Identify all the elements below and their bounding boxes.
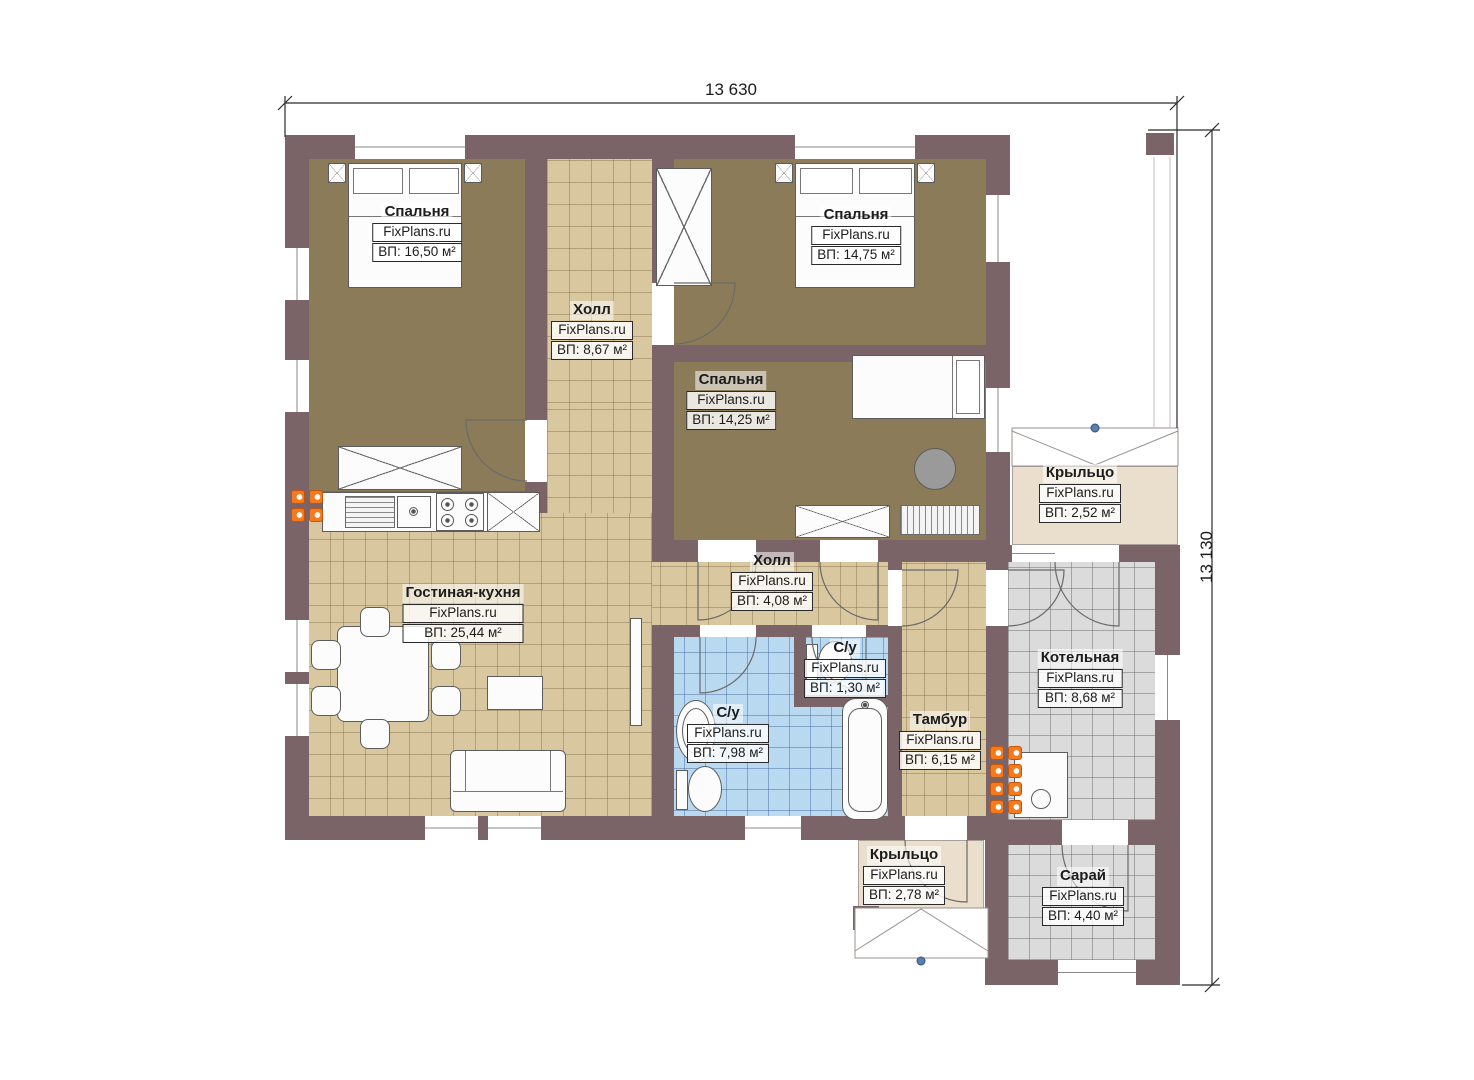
room-area: ВП: 6,15 м² [899,751,981,770]
brand-watermark: FixPlans.ru [811,226,901,245]
toilet [676,764,724,816]
door-opening [1055,545,1119,562]
room-name: Крыльцо [867,846,941,865]
radiator [291,490,323,522]
window [285,620,309,672]
room-name: Гостиная-кухня [403,584,524,603]
room-area: ВП: 4,08 м² [731,592,813,611]
window [745,816,801,840]
chair [431,640,461,670]
door-opening [820,540,878,562]
room-area: ВП: 14,75 м² [811,246,901,265]
coffee-table [487,676,543,710]
chair [311,686,341,716]
door-opening [525,420,547,482]
room-area: ВП: 8,67 м² [551,341,633,360]
room-name: Холл [750,552,794,571]
heater-appliance [900,505,980,535]
brand-watermark: FixPlans.ru [899,731,981,750]
dimension-top-label: 13 630 [631,80,831,100]
marker-dot [1091,424,1099,432]
floor-tambour [902,562,986,816]
window [986,388,1010,452]
brand-watermark: FixPlans.ru [372,223,462,242]
dimension-right-label: 13 130 [1197,502,1217,612]
window [1012,545,1058,562]
marker-dot [917,957,925,965]
nightstand [464,163,482,183]
chair [360,607,390,637]
room-label-shed: Сарай FixPlans.ru ВП: 4,40 м² [1042,866,1124,926]
room-label-bedroom-2: Спальня FixPlans.ru ВП: 14,75 м² [811,205,901,265]
wardrobe [795,505,890,538]
room-area: ВП: 4,40 м² [1042,907,1124,926]
room-label-boiler-room: Котельная FixPlans.ru ВП: 8,68 м² [1038,648,1123,708]
boiler [1014,752,1068,818]
room-area: ВП: 16,50 м² [372,243,462,262]
window [355,135,465,159]
floor-plan-canvas: 13 630 13 130 Спальня FixPlans.ru ВП: 16… [0,0,1474,1080]
brand-watermark: FixPlans.ru [1038,669,1123,688]
brand-watermark: FixPlans.ru [1039,484,1121,503]
porch-top-roof [1012,428,1178,466]
chimney-block [1146,133,1174,155]
door-opening [1062,820,1128,845]
radiator [990,746,1022,814]
brand-watermark: FixPlans.ru [686,391,776,410]
room-name: Сарай [1057,867,1109,886]
window [285,360,309,412]
window [488,816,541,840]
brand-watermark: FixPlans.ru [551,321,633,340]
wardrobe [656,168,712,286]
chair [431,686,461,716]
room-name: С/у [713,704,742,723]
brand-watermark: FixPlans.ru [403,604,524,623]
door-opening [986,570,1008,626]
room-area: ВП: 25,44 м² [403,624,524,643]
room-area: ВП: 1,30 м² [804,679,886,698]
window [795,135,915,159]
room-label-porch-bottom: Крыльцо FixPlans.ru ВП: 2,78 м² [863,845,945,905]
pot [914,448,956,490]
nightstand [775,163,793,183]
wardrobe [338,446,462,490]
room-area: ВП: 14,25 м² [686,411,776,430]
room-label-wc-small: С/у FixPlans.ru ВП: 1,30 м² [804,638,886,698]
kitchen-sink-drainer [345,496,395,528]
brand-watermark: FixPlans.ru [804,659,886,678]
tv-cabinet [630,618,642,726]
room-label-wc-big: С/у FixPlans.ru ВП: 7,98 м² [687,703,769,763]
bathtub [842,698,888,820]
brand-watermark: FixPlans.ru [863,866,945,885]
nightstand [917,163,935,183]
room-area: ВП: 2,78 м² [863,886,945,905]
brand-watermark: FixPlans.ru [1042,887,1124,906]
porch-pillar [853,906,879,930]
floor-passage [652,562,674,625]
room-label-porch-top: Крыльцо FixPlans.ru ВП: 2,52 м² [1039,463,1121,523]
nightstand [328,163,346,183]
room-label-hall-1: Холл FixPlans.ru ВП: 8,67 м² [551,300,633,360]
chair [360,719,390,749]
room-label-hall-2: Холл FixPlans.ru ВП: 4,08 м² [731,551,813,611]
room-name: Спальня [821,206,892,225]
window [1058,960,1136,985]
door-opening [812,625,866,637]
chair [311,640,341,670]
room-area: ВП: 8,68 м² [1038,689,1123,708]
brand-watermark: FixPlans.ru [731,572,813,591]
room-label-bedroom-3: Спальня FixPlans.ru ВП: 14,25 м² [686,370,776,430]
door-opening [700,625,756,637]
door-opening [888,570,902,626]
extension-lines [1154,157,1170,428]
room-name: Котельная [1038,649,1123,668]
door-opening [652,283,674,345]
stove [436,493,484,531]
room-name: Крыльцо [1043,464,1117,483]
door-opening [905,816,967,840]
room-label-bedroom-1: Спальня FixPlans.ru ВП: 16,50 м² [372,202,462,262]
window [425,816,478,840]
window [986,195,1010,262]
kitchen-cabinet [487,492,540,532]
sofa [450,750,566,812]
window [1155,655,1180,720]
single-bed [852,355,985,419]
room-name: Спальня [382,203,453,222]
room-area: ВП: 7,98 м² [687,744,769,763]
room-label-tambour: Тамбур FixPlans.ru ВП: 6,15 м² [899,710,981,770]
window [285,248,309,300]
room-name: С/у [830,639,859,658]
room-name: Холл [570,301,614,320]
room-name: Спальня [696,371,767,390]
floor-hall-1 [547,159,652,562]
room-label-living-kitchen: Гостиная-кухня FixPlans.ru ВП: 25,44 м² [403,583,524,643]
brand-watermark: FixPlans.ru [687,724,769,743]
window [285,684,309,736]
kitchen-sink-basin [397,496,431,528]
room-name: Тамбур [910,711,970,730]
room-area: ВП: 2,52 м² [1039,504,1121,523]
